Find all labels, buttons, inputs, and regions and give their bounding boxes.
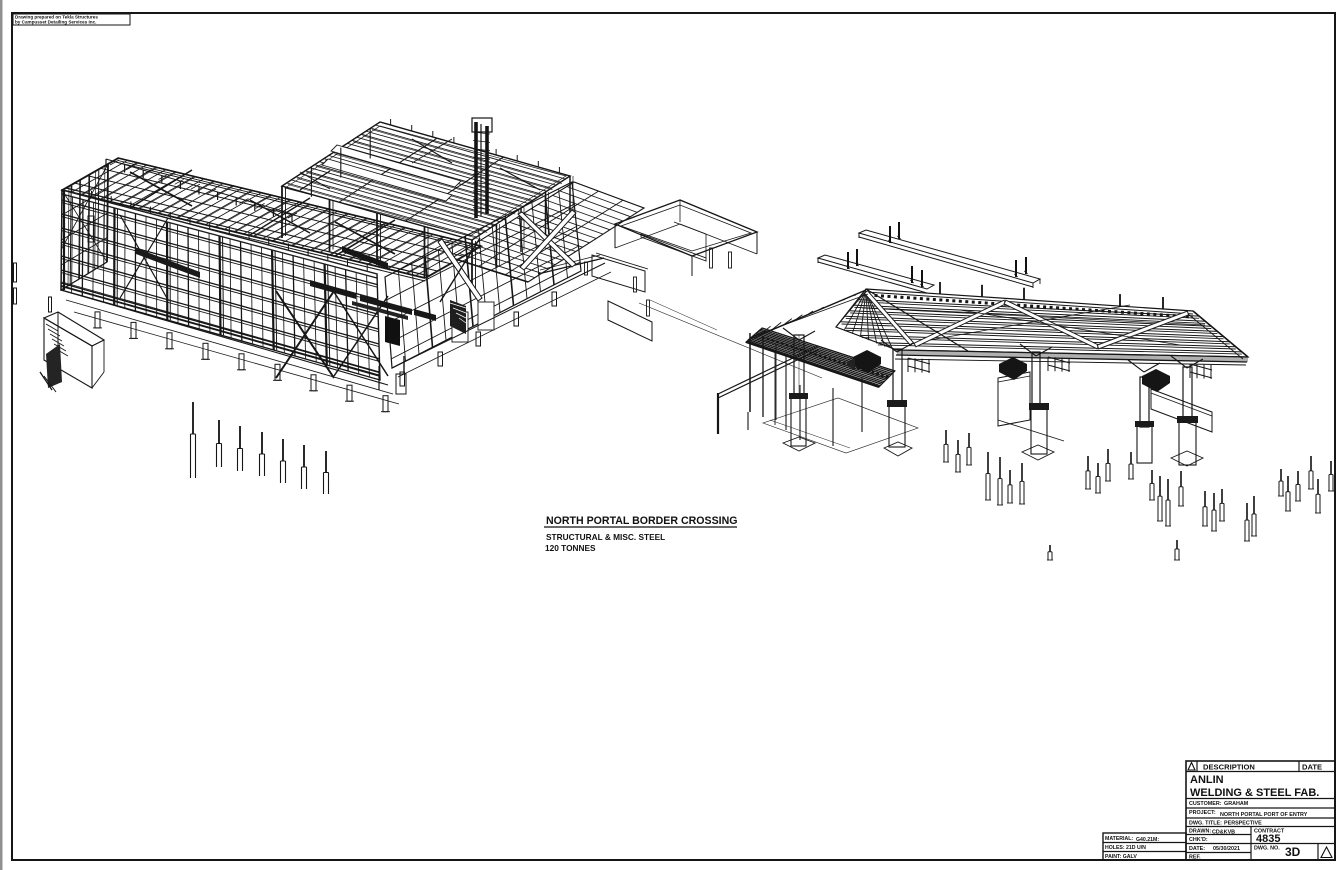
svg-text:PAINT: GALV: PAINT: GALV xyxy=(1105,854,1137,860)
svg-text:HOLES: 21D U/N: HOLES: 21D U/N xyxy=(1105,845,1146,851)
svg-text:by Campusset Detailing Service: by Campusset Detailing Services Inc. xyxy=(15,20,96,25)
svg-text:DRAWN:: DRAWN: xyxy=(1189,829,1211,835)
svg-text:DATE:: DATE: xyxy=(1189,846,1205,852)
svg-text:PROJECT:: PROJECT: xyxy=(1189,810,1216,816)
svg-text:REF.: REF. xyxy=(1189,855,1201,861)
svg-text:PERSPECTIVE: PERSPECTIVE xyxy=(1224,821,1262,827)
svg-text:NORTH PORTAL PORT OF ENTRY: NORTH PORTAL PORT OF ENTRY xyxy=(1220,812,1308,818)
svg-text:GRAHAM: GRAHAM xyxy=(1224,801,1249,807)
svg-text:DESCRIPTION: DESCRIPTION xyxy=(1203,763,1255,772)
svg-text:05/30/2021: 05/30/2021 xyxy=(1213,846,1240,852)
svg-text:G40.21M:: G40.21M: xyxy=(1136,837,1159,843)
svg-text:STRUCTURAL & MISC. STEEL: STRUCTURAL & MISC. STEEL xyxy=(546,532,665,542)
svg-text:NORTH PORTAL BORDER CROSSING: NORTH PORTAL BORDER CROSSING xyxy=(546,515,737,527)
svg-text:CHK'D:: CHK'D: xyxy=(1189,837,1208,843)
svg-text:MATERIAL:: MATERIAL: xyxy=(1105,836,1133,842)
svg-text:120 TONNES: 120 TONNES xyxy=(545,543,596,553)
svg-text:WELDING & STEEL FAB.: WELDING & STEEL FAB. xyxy=(1190,787,1319,799)
svg-text:ANLIN: ANLIN xyxy=(1190,774,1224,786)
svg-text:3D: 3D xyxy=(1285,845,1301,859)
svg-text:DATE: DATE xyxy=(1302,763,1322,772)
svg-text:DWG. NO.: DWG. NO. xyxy=(1254,846,1280,852)
svg-text:DWG. TITLE:: DWG. TITLE: xyxy=(1189,821,1222,827)
svg-text:CUSTOMER:: CUSTOMER: xyxy=(1189,801,1222,807)
